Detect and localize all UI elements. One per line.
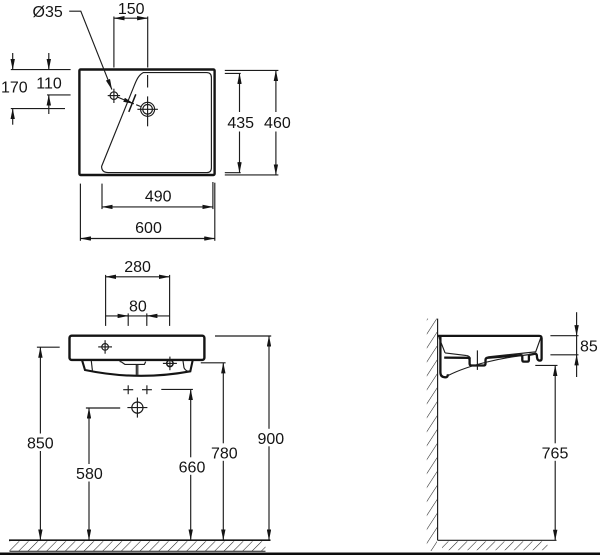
svg-text:170: 170	[1, 80, 28, 97]
svg-text:80: 80	[129, 299, 147, 316]
svg-text:765: 765	[542, 446, 569, 463]
svg-text:85: 85	[580, 338, 598, 355]
svg-text:110: 110	[36, 76, 62, 93]
svg-text:280: 280	[124, 259, 151, 276]
svg-text:780: 780	[211, 446, 238, 463]
svg-text:900: 900	[257, 431, 284, 448]
svg-text:460: 460	[264, 115, 291, 132]
svg-text:435: 435	[227, 115, 254, 132]
svg-text:580: 580	[76, 466, 103, 483]
svg-text:600: 600	[135, 220, 162, 237]
svg-text:490: 490	[145, 188, 172, 205]
svg-text:850: 850	[27, 436, 54, 453]
svg-text:Ø35: Ø35	[33, 4, 63, 21]
svg-text:660: 660	[179, 460, 206, 477]
svg-text:150: 150	[118, 1, 145, 18]
